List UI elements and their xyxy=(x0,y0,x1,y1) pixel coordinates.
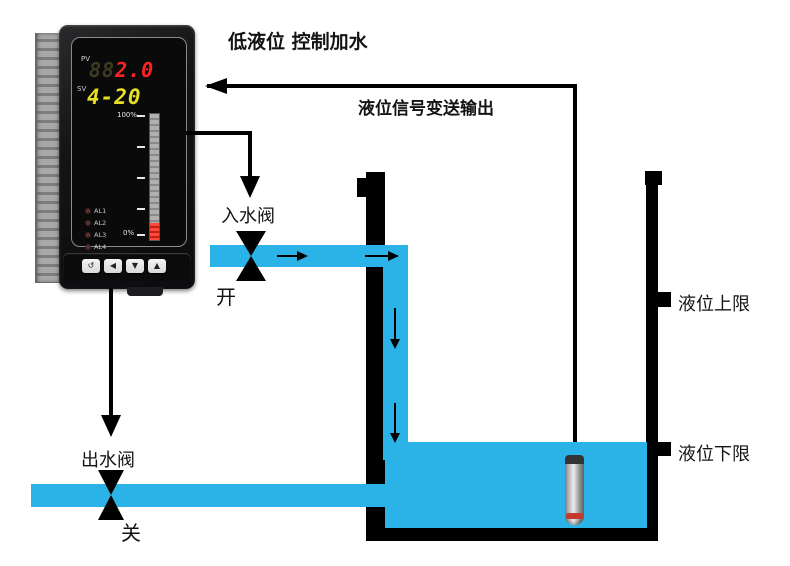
lower-limit-marker xyxy=(658,442,671,456)
tank-right-wall xyxy=(646,171,658,540)
signal-arrowhead-icon xyxy=(205,78,227,94)
controller-front-panel: PV 882.0 SV 4-20 100% 0% AL1 AL2 AL3 AL4 xyxy=(59,25,195,289)
outlet-control-line-vertical xyxy=(109,288,113,416)
al2-led xyxy=(85,220,91,226)
probe-red-ring xyxy=(566,513,583,519)
bargraph-tick xyxy=(137,115,145,117)
flow-arrowhead-down-icon xyxy=(390,339,400,349)
inlet-valve-label: 入水阀 xyxy=(221,202,275,228)
al4-led xyxy=(85,244,91,250)
inlet-valve-icon xyxy=(236,231,266,256)
al1-label: AL1 xyxy=(94,207,106,215)
inlet-control-arrowhead-icon xyxy=(240,176,260,198)
diagram-title: 低液位 控制加水 xyxy=(228,27,368,54)
flow-arrowhead-right-icon xyxy=(297,251,308,261)
pv-value: 2.0 xyxy=(115,58,154,82)
flow-arrow-right-icon xyxy=(277,255,299,257)
bargraph-tick xyxy=(137,208,145,210)
sv-value: 4-20 xyxy=(87,85,142,109)
probe-cable-gland xyxy=(565,455,584,464)
al3-label: AL3 xyxy=(94,231,106,239)
inlet-valve-icon xyxy=(236,256,266,281)
lower-limit-label: 液位下限 xyxy=(678,440,750,466)
sensor-cable-line xyxy=(573,84,577,457)
level-sensor-probe xyxy=(565,455,584,525)
outlet-valve-label: 出水阀 xyxy=(81,446,135,472)
inlet-control-line-horizontal xyxy=(186,131,252,135)
flow-arrowhead-down-icon xyxy=(390,433,400,443)
signal-line-horizontal xyxy=(207,84,577,88)
flow-arrow-down-icon xyxy=(394,308,396,341)
bargraph-track xyxy=(149,113,160,241)
al4-label: AL4 xyxy=(94,243,106,251)
left-arrow-button: ◀ xyxy=(104,259,122,273)
tank-bottom-wall xyxy=(366,528,658,541)
bargraph-0-label: 0% xyxy=(123,229,134,237)
bargraph-fill xyxy=(150,223,159,240)
al3-led xyxy=(85,232,91,238)
bargraph-tick xyxy=(137,234,145,236)
outlet-valve-state: 关 xyxy=(121,517,141,546)
tank-left-wall-flange xyxy=(357,178,367,197)
flow-arrow-down-icon xyxy=(394,403,396,435)
tank-water xyxy=(385,442,647,528)
controller-bottom-tab xyxy=(127,287,163,296)
sv-label: SV xyxy=(77,85,86,93)
bargraph-100-label: 100% xyxy=(117,111,137,119)
down-arrow-button: ▼ xyxy=(126,259,144,273)
inlet-control-line-vertical xyxy=(248,131,252,177)
flow-arrow-right-icon xyxy=(365,255,390,257)
upper-limit-label: 液位上限 xyxy=(678,290,750,316)
outlet-valve-icon xyxy=(98,470,124,495)
pv-ghost-digits: 88 xyxy=(89,58,115,82)
cycle-button: ↺ xyxy=(82,259,100,273)
al2-label: AL2 xyxy=(94,219,106,227)
outlet-control-arrowhead-icon xyxy=(101,415,121,437)
level-controller-device: PV 882.0 SV 4-20 100% 0% AL1 AL2 AL3 AL4 xyxy=(35,25,195,295)
up-arrow-button: ▲ xyxy=(148,259,166,273)
bargraph-tick xyxy=(137,146,145,148)
flow-arrowhead-right-icon xyxy=(388,251,399,261)
bargraph-tick xyxy=(137,177,145,179)
inlet-valve-state: 开 xyxy=(216,281,236,310)
al1-led xyxy=(85,208,91,214)
diagram-canvas: PV 882.0 SV 4-20 100% 0% AL1 AL2 AL3 AL4 xyxy=(0,0,790,566)
outlet-pipe-horizontal xyxy=(31,484,385,507)
tank-right-wall-cap xyxy=(645,171,662,185)
upper-limit-marker xyxy=(658,292,671,307)
signal-output-label: 液位信号变送输出 xyxy=(358,94,494,119)
